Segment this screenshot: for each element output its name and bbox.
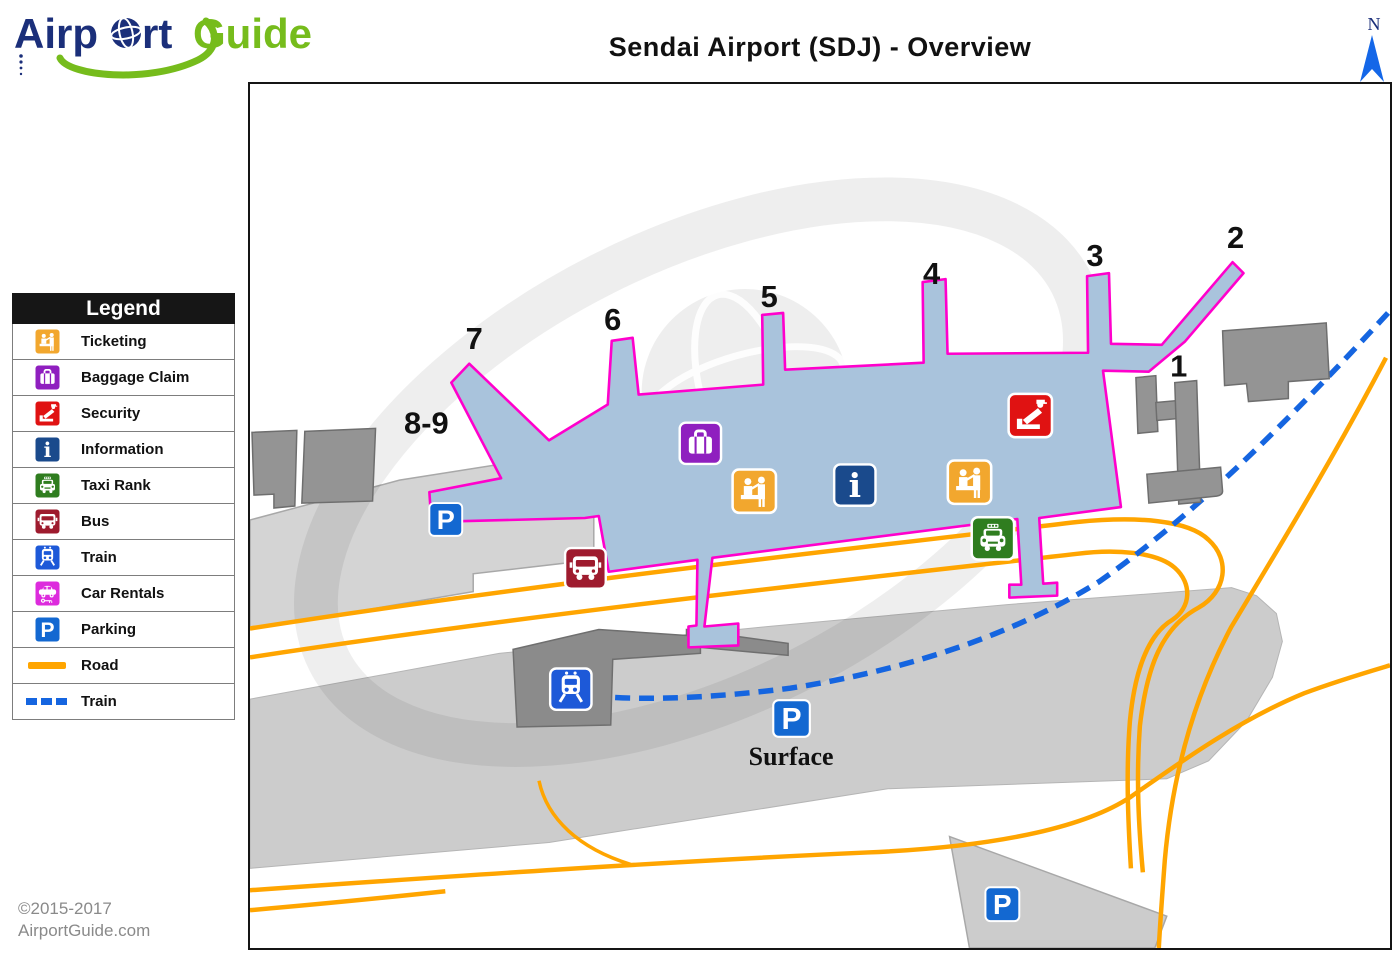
gate-label-3: 3 (1086, 238, 1103, 273)
legend-item-label: Car Rentals (81, 585, 164, 602)
svg-text:i: i (43, 438, 51, 462)
train-station-marker (550, 669, 591, 710)
legend-item-label: Taxi Rank (81, 477, 151, 494)
logo-text-airp: Airp (14, 10, 98, 57)
south-road-branch (250, 891, 445, 910)
copyright-site: AirportGuide.com (18, 920, 150, 942)
train-icon (25, 544, 69, 571)
legend-item-label: Security (81, 405, 140, 422)
security-icon (25, 400, 69, 427)
legend-item-label: Bus (81, 513, 109, 530)
legend-item-road: Road (12, 648, 235, 684)
legend-header: Legend (12, 293, 235, 324)
legend-item-information: i Information (12, 432, 235, 468)
ticketing-icon (25, 328, 69, 355)
airport-map: 7 6 5 4 3 2 1 8-9 i P P (248, 82, 1392, 950)
remote-parking-lot (950, 837, 1167, 948)
svg-text:P: P (993, 889, 1012, 920)
svg-text:i: i (849, 466, 861, 505)
compass-label: N (1368, 14, 1381, 34)
legend-item-label: Ticketing (81, 333, 147, 350)
legend-item-parking: P Parking (12, 612, 235, 648)
security-marker (1009, 394, 1052, 437)
legend-item-taxi-rank: Taxi Rank (12, 468, 235, 504)
bus-icon (25, 508, 69, 535)
taxi-rank-marker (972, 517, 1014, 559)
bus-stop-marker (565, 548, 606, 589)
legend-item-bus: Bus (12, 504, 235, 540)
gate-label-7: 7 (466, 321, 483, 356)
road-line-swatch (25, 661, 69, 670)
gate-label-5: 5 (761, 279, 778, 314)
north-compass: N (1346, 8, 1398, 93)
surface-parking-label: Surface (749, 742, 834, 771)
legend-item-label: Baggage Claim (81, 369, 189, 386)
gate-label-1: 1 (1170, 349, 1187, 384)
legend-item-label: Road (81, 657, 119, 674)
parking-marker-surface: P (773, 700, 810, 737)
car-rentals-icon (25, 580, 69, 607)
legend-item-security: Security (12, 396, 235, 432)
ticketing-marker-east (948, 461, 991, 504)
legend-item-label: Train (81, 549, 117, 566)
north-arrow-icon (1360, 35, 1384, 82)
ticketing-marker-west (733, 469, 776, 512)
page-title: Sendai Airport (SDJ) - Overview (248, 32, 1392, 63)
parking-marker-west: P (429, 503, 462, 536)
legend-item-label: Parking (81, 621, 136, 638)
copyright-years: ©2015-2017 (18, 898, 150, 920)
logo-text-rt: rt (142, 10, 172, 57)
baggage-claim-marker (680, 423, 721, 464)
taxi-icon (25, 472, 69, 499)
information-marker: i (834, 464, 875, 505)
gate-label-8-9: 8-9 (404, 405, 449, 440)
svg-text:P: P (437, 505, 455, 535)
legend-item-baggage-claim: Baggage Claim (12, 360, 235, 396)
legend-item-car-rentals: Car Rentals (12, 576, 235, 612)
building-gate1-d (1147, 467, 1223, 503)
building-west-2 (302, 428, 376, 503)
parking-marker-southeast: P (985, 887, 1019, 921)
legend: Legend Ticketing Baggage Claim Security … (12, 293, 235, 720)
train-line-swatch (25, 697, 69, 706)
globe-icon (110, 17, 142, 49)
legend-item-label: Information (81, 441, 164, 458)
legend-item-train-line: Train (12, 684, 235, 720)
legend-item-label: Train (81, 693, 117, 710)
parking-icon: P (25, 616, 69, 643)
information-icon: i (25, 436, 69, 463)
legend-item-ticketing: Ticketing (12, 324, 235, 360)
baggage-claim-icon (25, 364, 69, 391)
gate-label-6: 6 (604, 302, 621, 337)
legend-item-train: Train (12, 540, 235, 576)
gate-label-2: 2 (1227, 220, 1244, 255)
copyright: ©2015-2017 AirportGuide.com (18, 898, 150, 942)
gate-label-4: 4 (923, 256, 940, 291)
svg-text:P: P (781, 703, 801, 736)
building-west-1 (252, 430, 297, 508)
building-gate1-a (1136, 376, 1158, 434)
svg-text:P: P (40, 619, 54, 642)
